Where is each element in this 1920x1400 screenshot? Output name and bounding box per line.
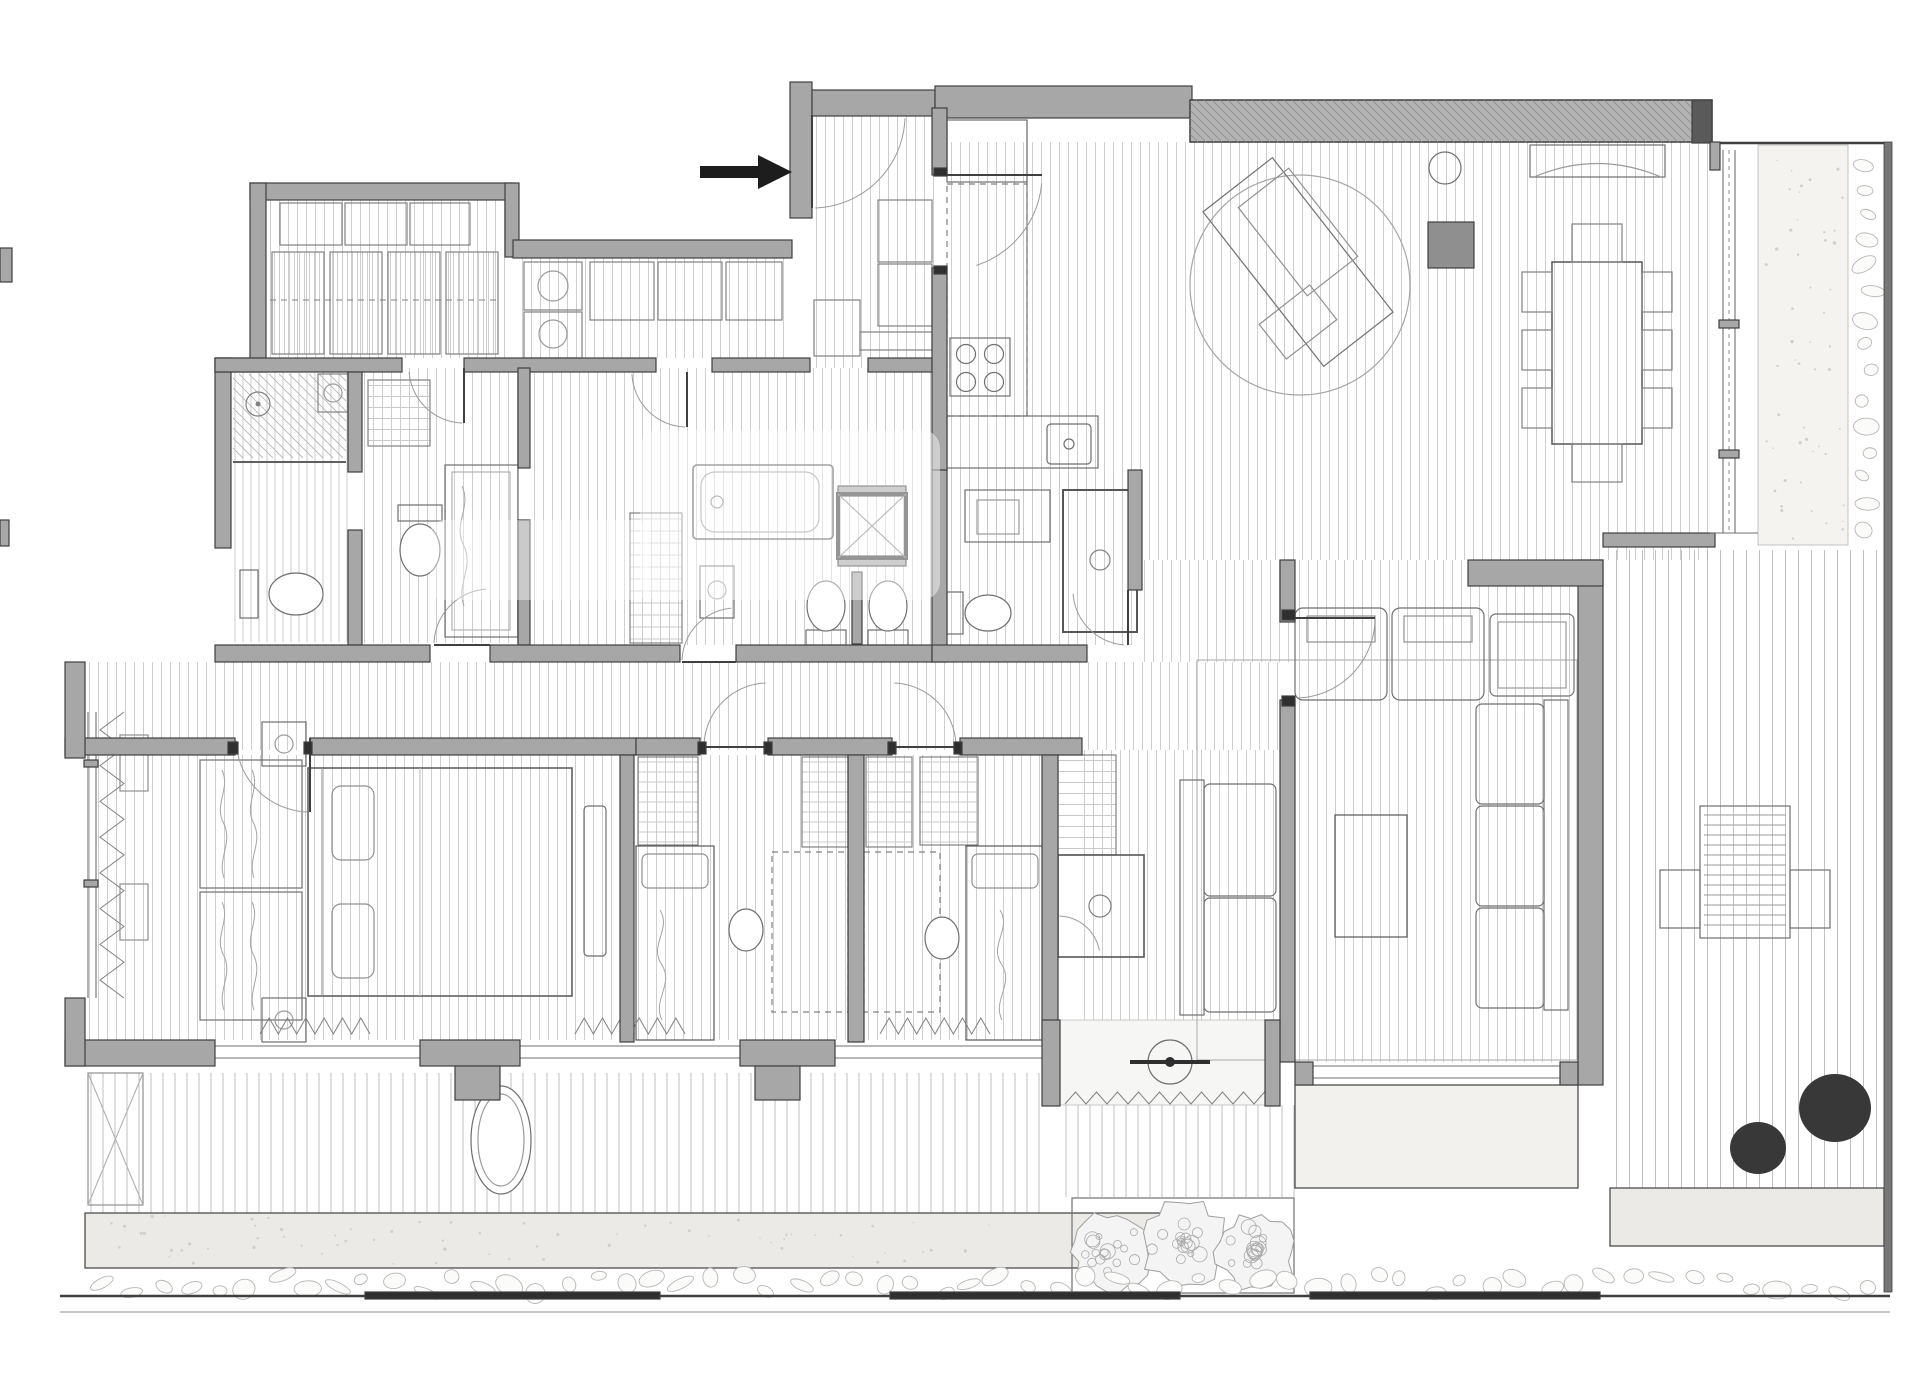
wall bbox=[736, 645, 932, 662]
wall bbox=[490, 645, 680, 662]
wall bbox=[1265, 1020, 1280, 1106]
apartment-floor-plan bbox=[0, 0, 1920, 1400]
wall bbox=[518, 368, 530, 468]
wall bbox=[65, 738, 235, 755]
wall bbox=[1578, 560, 1603, 1085]
wall bbox=[310, 738, 636, 755]
wall bbox=[65, 662, 85, 758]
watermark-ghost bbox=[430, 520, 650, 600]
side-table-square bbox=[1428, 222, 1474, 268]
wall bbox=[348, 372, 362, 472]
door-jamb bbox=[228, 742, 238, 754]
wall bbox=[65, 1040, 215, 1066]
wall bbox=[464, 358, 656, 372]
wall bbox=[712, 358, 810, 372]
wall bbox=[790, 82, 812, 218]
wall bbox=[1128, 470, 1142, 590]
shower1-drain-dot bbox=[256, 402, 261, 407]
planter-pot-dark bbox=[1799, 1074, 1871, 1142]
wall bbox=[420, 1040, 520, 1066]
wall bbox=[620, 755, 634, 1042]
wall bbox=[250, 183, 513, 200]
right-boundary-wall bbox=[1884, 142, 1892, 1292]
door-jamb bbox=[698, 742, 706, 754]
toilet4-bowl bbox=[965, 595, 1011, 631]
wall bbox=[0, 520, 9, 546]
wall bbox=[636, 738, 700, 755]
wall bbox=[740, 1040, 835, 1066]
wall bbox=[755, 1066, 800, 1100]
door-jamb bbox=[1282, 696, 1295, 706]
base-dark-seg bbox=[890, 1292, 1180, 1299]
wall bbox=[0, 248, 12, 282]
wall bbox=[250, 183, 266, 368]
watermark-ghost bbox=[640, 430, 940, 600]
terrace-oval-table-inner bbox=[478, 1094, 524, 1186]
wall bbox=[1710, 142, 1720, 170]
wall bbox=[1042, 755, 1058, 1042]
toilet1-bowl bbox=[269, 573, 323, 615]
kid2-chair bbox=[925, 917, 959, 959]
planter-pot-dark bbox=[1730, 1122, 1786, 1174]
right-terrace-band bbox=[1610, 1188, 1884, 1246]
wall bbox=[65, 998, 85, 1066]
base-dark-seg bbox=[365, 1292, 660, 1299]
terrace-walk bbox=[1758, 145, 1848, 545]
door-jamb bbox=[934, 266, 947, 274]
wall bbox=[935, 86, 1192, 118]
wall bbox=[215, 358, 231, 548]
wall bbox=[848, 755, 864, 1042]
door-jamb bbox=[888, 742, 896, 754]
wall bbox=[513, 240, 792, 258]
wall bbox=[1560, 1062, 1578, 1085]
wall bbox=[932, 645, 1087, 662]
kid1-chair bbox=[729, 909, 763, 951]
floor-plan-page bbox=[0, 0, 1920, 1400]
door-jamb bbox=[954, 742, 962, 754]
wall bbox=[960, 738, 1082, 755]
wall bbox=[455, 1066, 500, 1100]
wall bbox=[868, 358, 932, 372]
exterior-wall-hatched bbox=[1190, 100, 1712, 142]
wall bbox=[932, 108, 947, 175]
glazing-mullion bbox=[1719, 450, 1739, 458]
wall bbox=[1280, 700, 1295, 1062]
wall bbox=[812, 90, 935, 116]
wall bbox=[215, 645, 430, 662]
glazing-mullion bbox=[1719, 320, 1739, 328]
wall bbox=[1468, 560, 1603, 586]
wall bbox=[768, 738, 892, 755]
wall-end-dark bbox=[1692, 100, 1712, 143]
balcony-table-hub bbox=[1165, 1057, 1175, 1067]
wall bbox=[215, 358, 402, 372]
gravel-band bbox=[85, 1213, 1180, 1268]
living-terrace-band bbox=[1295, 1085, 1578, 1188]
door-jamb bbox=[304, 742, 312, 754]
base-dark-seg bbox=[1310, 1292, 1600, 1299]
door-jamb bbox=[1282, 610, 1295, 620]
wall bbox=[1042, 1020, 1060, 1106]
wall bbox=[348, 530, 362, 645]
wall bbox=[1603, 533, 1715, 547]
bay-mullion bbox=[84, 760, 98, 767]
bay-mullion bbox=[84, 880, 98, 887]
door-jamb bbox=[934, 168, 947, 176]
wall bbox=[1295, 1062, 1313, 1085]
door-jamb bbox=[764, 742, 772, 754]
